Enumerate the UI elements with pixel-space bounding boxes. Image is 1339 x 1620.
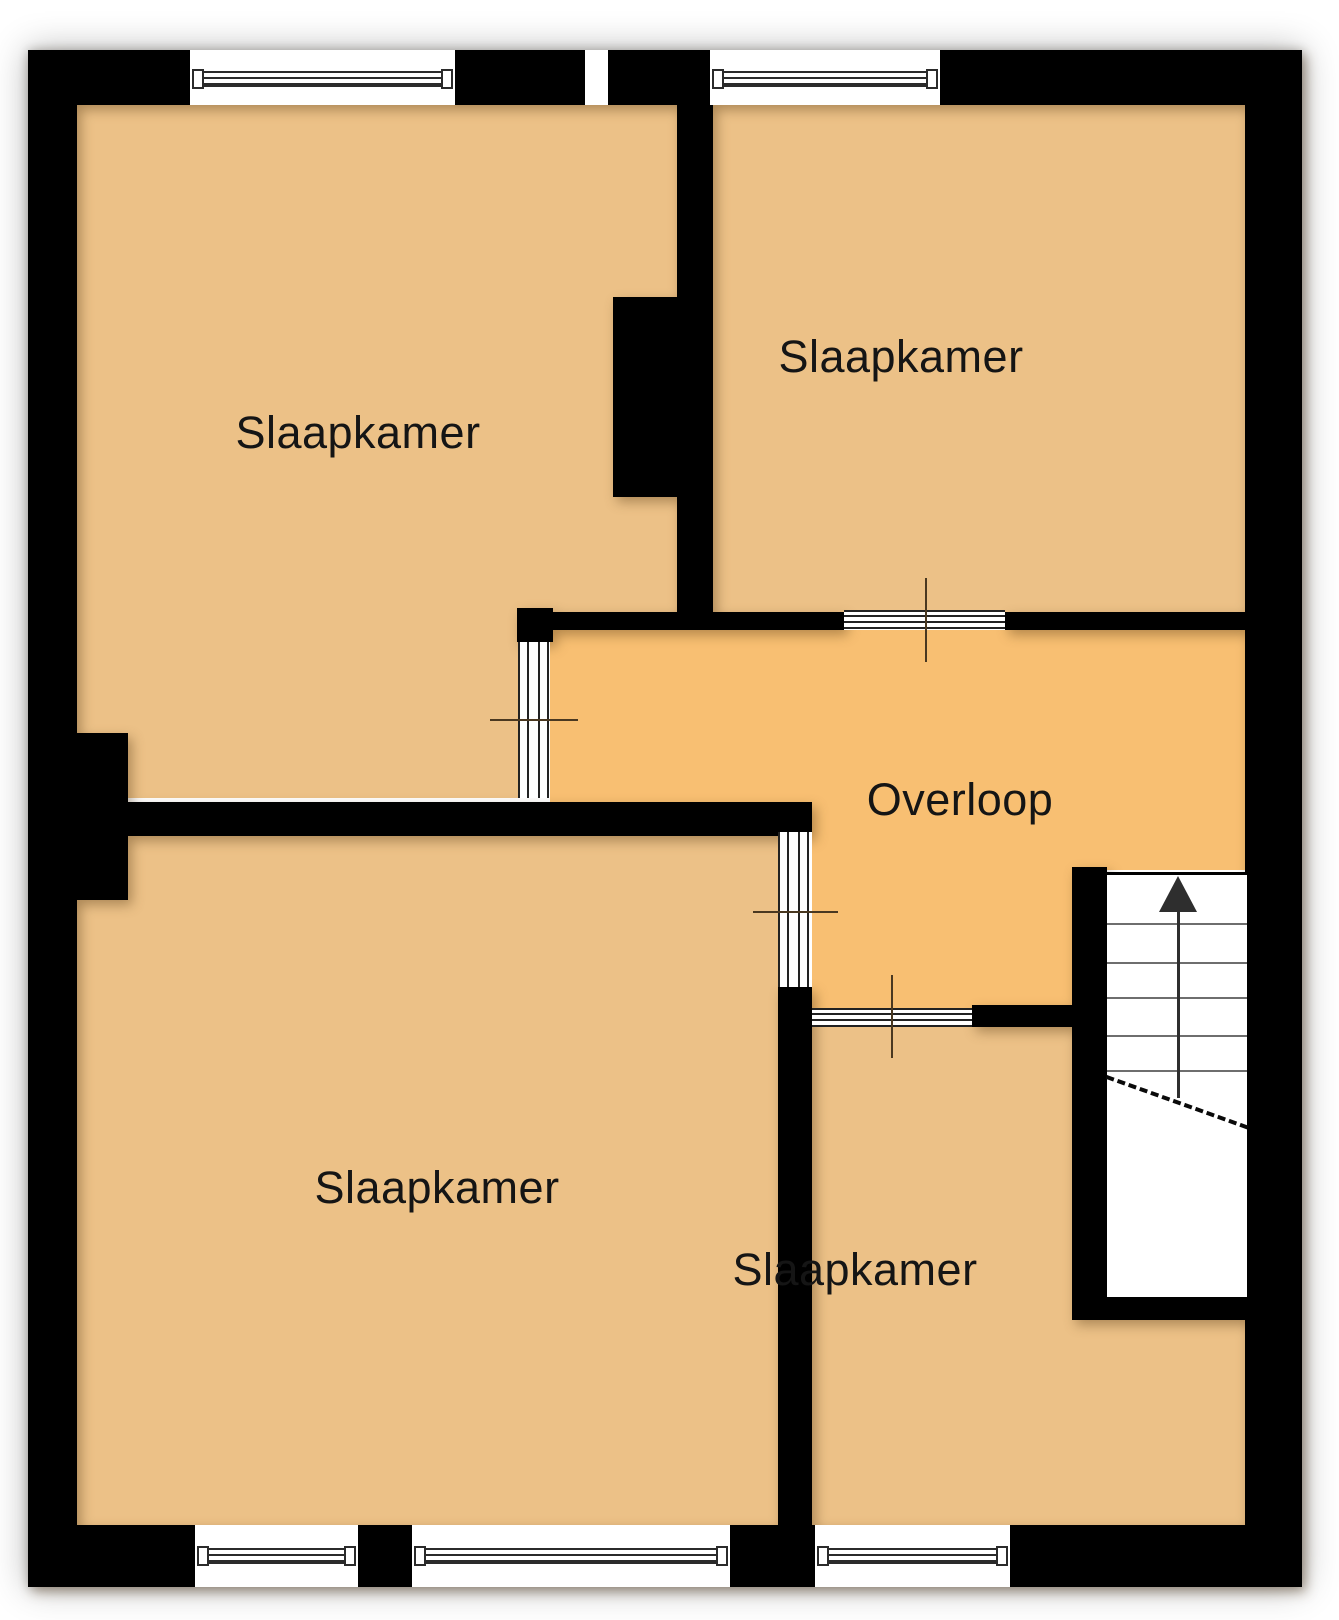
labels-layer: Slaapkamer Slaapkamer Overloop Slaapkame… — [0, 0, 1339, 1620]
room-label-landing: Overloop — [867, 774, 1054, 826]
room-label-bedroom-bottom-right: Slaapkamer — [732, 1244, 977, 1296]
room-label-bedroom-bottom-left: Slaapkamer — [314, 1162, 559, 1214]
room-label-bedroom-top-left: Slaapkamer — [235, 407, 480, 459]
room-label-bedroom-top-right: Slaapkamer — [778, 331, 1023, 383]
floorplan-canvas: Slaapkamer Slaapkamer Overloop Slaapkame… — [0, 0, 1339, 1620]
